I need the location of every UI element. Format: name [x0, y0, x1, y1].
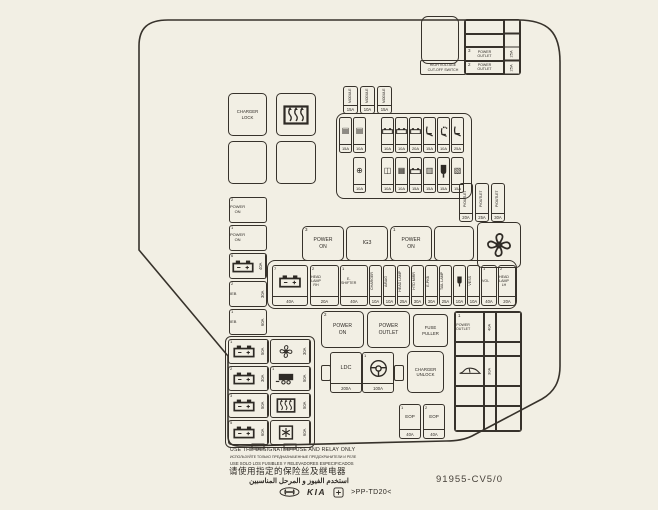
fuse: 60A	[270, 420, 311, 445]
warning-text-ru: ИСПОЛЬЗУЙТЕ ТОЛЬКО ПРЕДНАЗНАЧЕННЫЕ ПРЕДО…	[230, 455, 356, 459]
fuse: 2 IEB 30A	[229, 281, 267, 307]
battsm-icon	[410, 158, 421, 184]
high-voltage-switch-label: HIGH VOLTAGE CUT-OFF SWITCH	[428, 63, 459, 72]
fuse-amp: 15A	[340, 144, 351, 152]
fuse-amp	[484, 406, 496, 431]
fan-icon	[275, 344, 297, 359]
power-on-1-relay: 1 POWER ON	[390, 226, 432, 261]
charger-lock-relay: CHARGER LOCK	[228, 93, 267, 136]
table-label-cell	[455, 356, 484, 386]
plug-icon	[438, 158, 449, 184]
seatfan-icon	[438, 118, 449, 144]
fuse-label: HEAD LAMP RH	[311, 275, 321, 287]
fuse-amp: 30A	[484, 356, 496, 386]
fuse-amp: 15A	[424, 144, 435, 152]
fuse-number: 2	[231, 198, 233, 203]
power-outlet-relay: POWER OUTLET	[367, 311, 410, 348]
fuse-amp: 30A	[426, 296, 437, 305]
table-label-cell	[465, 34, 504, 48]
fuse-amp: 50A	[258, 394, 268, 417]
fuse: 2 30A	[228, 366, 269, 391]
power-outlet-table: 3 POWER OUTLET 25A 2 POWER OUTLET 25A	[464, 19, 521, 75]
fuse	[367, 117, 380, 153]
battsm-icon	[382, 118, 393, 144]
fuse-amp: 25A	[452, 144, 463, 152]
fuse-label: EOP	[405, 414, 415, 419]
fuse-amp: 10A	[354, 184, 365, 192]
fuse: 15A	[409, 157, 422, 193]
fuse: 3 50A	[228, 393, 269, 418]
fuse: 2 HEAD LAMP LH 20A	[498, 265, 516, 306]
relay-label: POWER ON	[314, 237, 333, 250]
fuse: E-PKB 30A	[425, 265, 438, 306]
fuse-label: POWER ON	[230, 205, 245, 215]
fuse-amp: 30A	[492, 213, 504, 221]
fuse-amp	[340, 184, 351, 192]
coil-icon: ▧	[452, 158, 463, 184]
batt-icon	[278, 275, 302, 288]
fuse-label: MODULE	[349, 87, 352, 105]
fuse-amp: 25A	[504, 61, 520, 75]
fuse-label: P/OUTLET	[496, 184, 499, 213]
module-icon: ▤	[354, 118, 365, 144]
empty-relay-slot	[276, 141, 316, 184]
fuse: ▤ 10A	[353, 117, 366, 153]
table-empty-cell	[496, 342, 521, 356]
fuse-amp: 10A	[396, 144, 407, 152]
fuse: TAIL LAMP 25A	[439, 265, 452, 306]
ldc-fuse: LDC 200A	[330, 352, 362, 393]
warning-text-en: USE THE DESIGNATED FUSE AND RELAY ONLY	[230, 447, 355, 453]
relay-label: POWER OUTLET	[379, 323, 399, 336]
fuse: 2 EOP 40A	[423, 404, 445, 439]
batt-icon	[233, 425, 255, 440]
material-code: >PP-TD20<	[351, 489, 392, 496]
relay-label: POWER ON	[402, 237, 421, 250]
fuse-amp	[484, 386, 496, 406]
fuse-amp: 200A	[331, 383, 361, 392]
table-label-cell	[455, 342, 484, 356]
fuse-number: 5	[230, 421, 232, 426]
fuse-amp: 25A	[476, 213, 488, 221]
fuse-label: HTD MIRR	[412, 272, 416, 290]
fuse-amp: 25A	[504, 47, 520, 61]
fuse: 30A	[270, 339, 311, 364]
right-outlet-table: 1 POWER OUTLET 40A	[454, 311, 522, 432]
kia-logo: KIA	[307, 487, 326, 497]
table-empty-cell	[496, 356, 521, 386]
fuse-label: MODULE	[383, 87, 386, 105]
fuse-number: 2	[230, 367, 232, 372]
fuse-label: P/OUTLET	[480, 184, 483, 213]
fuse-amp: 40A	[273, 296, 307, 305]
fuse-amp	[504, 34, 520, 48]
fuse-box-diagram: HIGH VOLTAGE CUT-OFF SWITCH 3 POWER OUTL…	[0, 0, 658, 510]
fuse-number: 2	[312, 266, 314, 271]
fuse-amp: 30A	[258, 282, 267, 306]
brand-logos: KIA >PP-TD20<	[279, 486, 392, 498]
car-icon	[458, 365, 482, 377]
fuse-amp: 10A	[396, 184, 407, 192]
fuse: P/OUTLET 25A	[475, 183, 489, 222]
table-empty-cell	[496, 312, 521, 342]
part-number: 91955-CV5/0	[436, 474, 503, 485]
table-label-cell	[455, 386, 484, 406]
fuse: 1 IEB 60A	[229, 309, 267, 335]
fuse-grid-row-b: ⊕ 10A ◫ 10A ▦ 10A 15A ▥ 15A 15A ▧	[339, 157, 464, 193]
fuse: 1 E- SHIFTER 40A	[340, 265, 368, 306]
fuse-number: 1	[342, 266, 344, 271]
batt-icon	[232, 259, 254, 274]
fuse-amp: 15A	[424, 184, 435, 192]
fuse: 5 60A	[228, 420, 269, 445]
fuse-amp: 10A	[468, 296, 479, 305]
fuse-grid-row-a: ▤ 15A ▤ 10A 10A 10A 20A 15A	[339, 117, 464, 153]
ig3-relay: IG3	[346, 226, 388, 261]
fuse-label: EOP	[429, 414, 439, 419]
fuse: MODULE 10A	[360, 86, 375, 114]
relay-number: 3	[305, 227, 308, 232]
fuse: 1 EOP 40A	[399, 404, 421, 439]
fuse-number: 6	[231, 254, 233, 259]
fuse-label: POWER OUTLET	[456, 323, 470, 331]
fan-icon	[485, 231, 513, 259]
fuse-puller-label: FUSE PULLER	[422, 325, 439, 336]
fuse-amp: 15A	[438, 184, 449, 192]
fuse	[367, 157, 380, 193]
fuse: 50A	[270, 393, 311, 418]
fuse-amp	[484, 342, 496, 356]
relay-label: CHARGER UNLOCK	[415, 367, 437, 378]
fuse-number: 1	[458, 313, 461, 318]
fuse: A/BAG 10A	[383, 265, 396, 306]
fuse-amp: 15A	[344, 105, 357, 113]
fuse-amp: 30A	[300, 340, 310, 363]
fuse-amp: 60A	[300, 421, 310, 444]
fuse-label: E- SHIFTER	[341, 277, 356, 285]
fuse-label: A/BAG	[384, 276, 388, 287]
fuse-amp: 50A	[300, 394, 310, 417]
fuse-label: MODULE	[366, 87, 369, 105]
fuse: 2 HEAD LAMP RH 20A	[310, 265, 339, 306]
batt-icon	[233, 371, 255, 386]
defrost-icon	[275, 398, 297, 413]
fuse: 1 VOL 40A	[481, 265, 497, 306]
fuse: 10A	[395, 117, 408, 153]
fuse: ▦ 10A	[395, 157, 408, 193]
fuse: 7 40A	[272, 265, 308, 306]
left-fuse-strip: 2 POWER ON 40A 1 POWER ON 40A 6 4	[229, 197, 267, 335]
fuse: MODULE 15A	[377, 86, 392, 114]
fuse-label: E-PKB	[426, 276, 430, 287]
fuse-number: 2	[468, 62, 471, 67]
fuse-number: 3	[468, 48, 471, 53]
fuse: ▥ 15A	[423, 157, 436, 193]
fuse-number: 2	[500, 266, 502, 271]
table-label-cell: 2 POWER OUTLET	[465, 61, 504, 75]
fuse-amp: 25A	[398, 296, 409, 305]
snow-icon	[275, 425, 297, 440]
fuse: 20A	[409, 117, 422, 153]
table-label-cell: 3 POWER OUTLET	[465, 47, 504, 61]
fuse-number: 1	[230, 340, 232, 345]
right-fuse-trio: P/OUTLET 20A P/OUTLET 25A P/OUTLET 30A	[459, 183, 505, 222]
relay-number: 2	[324, 312, 327, 317]
fuse-amp: 10A	[361, 105, 374, 113]
fuse: 15A	[437, 157, 450, 193]
sensor-icon: ⊕	[354, 158, 365, 184]
fuse-amp: 10A	[382, 144, 393, 152]
fuse: 15A	[423, 117, 436, 153]
fuse-label: HEAD LAMP LH	[499, 275, 509, 287]
battsm-icon	[396, 118, 407, 144]
fuse-amp	[504, 20, 520, 34]
fuse-amp: 50A	[300, 367, 310, 390]
mirror-icon: ◫	[382, 158, 393, 184]
fuse-label: TAIL LAMP	[440, 272, 444, 290]
eop-fuses: 1 EOP 40A 2 EOP 40A	[399, 404, 445, 439]
steering-fuse: 1 100A	[362, 352, 394, 393]
plug-icon	[454, 275, 465, 288]
fuse-label: CHARGER	[370, 272, 374, 290]
top-fuse-trio: MODULE 15A MODULE 10A MODULE 15A	[343, 86, 392, 114]
relay-label: IG3	[363, 240, 372, 247]
fuse-label: LDC	[340, 365, 351, 371]
warning-text-ar: استخدم الفيوز و المرحل المناسبين	[234, 477, 364, 485]
rear-defroster-relay	[276, 93, 316, 136]
table-empty-cell	[496, 406, 521, 431]
battsm-icon	[410, 118, 421, 144]
fuse: HTD MIRR 30A	[411, 265, 424, 306]
fuse-number: 3	[230, 394, 232, 399]
fuse-number: 7	[274, 266, 276, 271]
fuse: 1 50A	[228, 339, 269, 364]
fuse-amp: 25A	[440, 296, 451, 305]
fuse-number: 1	[231, 310, 233, 315]
steering-wheel-icon	[369, 359, 388, 378]
fuse: 1 POWER ON 40A	[229, 225, 267, 251]
fuse: 10A	[437, 117, 450, 153]
fuse-amp: 20A	[460, 213, 472, 221]
key-icon: ▥	[424, 158, 435, 184]
fuse: P/OUTLET 30A	[491, 183, 505, 222]
fuse-amp: 15A	[410, 184, 421, 192]
fuse-amp: 10A	[354, 144, 365, 152]
fuse-amp: 40A	[400, 429, 420, 438]
fuse-amp	[368, 144, 379, 152]
fuse-puller-box: FUSE PULLER	[413, 314, 448, 347]
fuse-amp: 40A	[482, 296, 496, 305]
batt-icon	[233, 398, 255, 413]
fuse-amp: 40A	[424, 429, 444, 438]
fuse-amp: 10A	[454, 296, 465, 305]
rear-defroster-icon	[283, 105, 309, 125]
seat-icon	[424, 118, 435, 144]
batt-icon	[233, 344, 255, 359]
fuse-tab	[394, 365, 404, 381]
trailer-icon	[275, 371, 297, 386]
fuse-label: P/OUTLET	[464, 184, 467, 213]
empty-relay-slot	[228, 141, 267, 184]
relay-number: 1	[393, 227, 396, 232]
table-label-cell	[465, 20, 504, 34]
fuse-amp: 10A	[384, 296, 395, 305]
fuse-amp: 10A	[382, 184, 393, 192]
fuse-amp: 20A	[499, 296, 515, 305]
fuse: HEAD LAMP 25A	[397, 265, 410, 306]
fuse: ◫ 10A	[381, 157, 394, 193]
high-voltage-switch-label-box: HIGH VOLTAGE CUT-OFF SWITCH	[420, 60, 466, 75]
fuse: 10A	[381, 117, 394, 153]
fuse-amp: 50A	[258, 340, 268, 363]
fuse-number: 2	[425, 405, 427, 410]
fuse-amp: 30A	[258, 367, 268, 390]
fuse: CHARGER 10A	[369, 265, 382, 306]
relay-label: CHARGER LOCK	[237, 109, 259, 120]
fuse-number: 1	[231, 226, 233, 231]
fuse-amp: 60A	[258, 421, 268, 444]
charger-unlock-relay: CHARGER UNLOCK	[407, 351, 444, 393]
fuse-amp: 20A	[311, 296, 338, 305]
fuse: 1 50A	[270, 366, 311, 391]
fuse-number: 1	[483, 266, 485, 271]
mid-fuse-row: 7 40A 2 HEAD LAMP RH 20A 1 E- SHIFTER	[267, 260, 517, 309]
fuse-number: 1	[364, 353, 366, 358]
grid-icon: ▦	[396, 158, 407, 184]
fuse-amp: 30A	[412, 296, 423, 305]
fuse-number: 1	[401, 405, 403, 410]
fuse-amp: 40A	[256, 254, 266, 278]
fuse-amp: 100A	[363, 383, 393, 392]
fuse: VESS 10A	[467, 265, 480, 306]
left-fuse-grid: 1 50A 30A 2 30A 1	[225, 336, 315, 448]
power-on-2-relay: 2 POWER ON	[321, 311, 364, 348]
fuse	[339, 157, 352, 193]
empty-relay-slot	[434, 226, 474, 261]
fuse-label: POWER ON	[230, 233, 245, 243]
table-label-cell: 1 POWER OUTLET	[455, 312, 484, 342]
fuse-number: 1	[272, 367, 274, 372]
fuse-amp: 60A	[258, 310, 267, 334]
relay-label: POWER ON	[333, 323, 352, 336]
high-voltage-switch-box	[421, 16, 459, 64]
fuse-amp	[368, 184, 379, 192]
warning-text-zh: 请使用指定的保险丝及继电器	[229, 465, 346, 477]
table-label-cell	[455, 406, 484, 431]
table-empty-cell	[496, 386, 521, 406]
power-on-3-relay: 3 POWER ON	[302, 226, 344, 261]
fuse-label: VOL	[482, 279, 489, 283]
fuse-label: HEAD LAMP	[398, 271, 402, 292]
fuse-label: POWER OUTLET	[477, 63, 491, 71]
fuse: 10A	[453, 265, 466, 306]
fuse: ▤ 15A	[339, 117, 352, 153]
fuse-label: POWER OUTLET	[477, 50, 491, 58]
fuse-amp: 40A	[484, 312, 496, 342]
fuse-amp: 15A	[378, 105, 391, 113]
fuse: P/OUTLET 20A	[459, 183, 473, 222]
fuse-amp: 10A	[370, 296, 381, 305]
fuse-amp: 10A	[438, 144, 449, 152]
hyundai-logo-icon	[279, 487, 300, 497]
material-mark-icon	[333, 487, 344, 498]
fuse-amp: 40A	[341, 296, 367, 305]
module-icon: ▤	[340, 118, 351, 144]
fuse: MODULE 15A	[343, 86, 358, 114]
fuse: 6 40A	[229, 253, 267, 279]
fuse-amp: 20A	[410, 144, 421, 152]
fuse: 2 POWER ON 40A	[229, 197, 267, 223]
fuse: 25A	[451, 117, 464, 153]
fuse: ⊕ 10A	[353, 157, 366, 193]
fuse-number: 2	[231, 282, 233, 287]
seat-icon	[452, 118, 463, 144]
fuse-label: VESS	[468, 276, 472, 286]
